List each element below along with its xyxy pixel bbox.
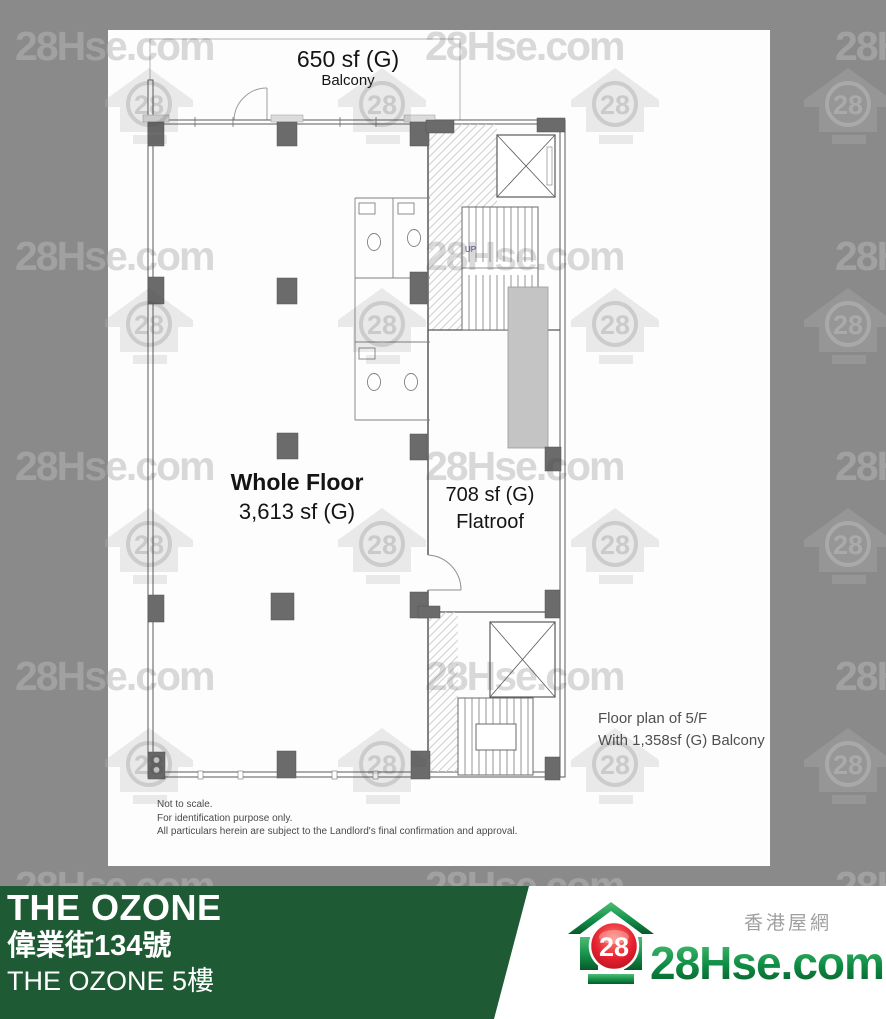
watermark-house: 28 <box>802 66 886 146</box>
disclaimer-line1: Not to scale. <box>157 798 577 812</box>
disclaimer-line2: For identification purpose only. <box>157 812 577 826</box>
bottom-bar: THE OZONE 偉業街134號 THE OZONE 5樓 <box>0 886 886 1019</box>
main-area-label: Whole Floor 3,613 sf (G) <box>197 468 397 527</box>
stairs-up-label: UP <box>465 245 476 254</box>
watermark-house: 28 <box>802 286 886 366</box>
watermark-house: 28 <box>802 726 886 806</box>
svg-text:28: 28 <box>833 90 863 120</box>
elevator-top <box>497 135 555 197</box>
flatroof-size: 708 sf (G) <box>420 482 560 509</box>
watermark-house: 28 <box>802 506 886 586</box>
watermark-house-icon: 28 <box>802 66 886 146</box>
page: 28Hse.com28Hse.com28Hse.com28Hse.com28Hs… <box>0 0 886 1019</box>
watermark-text: 28Hse.com <box>835 26 886 67</box>
watermark-text: 28Hse.com <box>835 236 886 277</box>
house-logo-icon: 28 <box>566 900 656 992</box>
watermark-house-icon: 28 <box>802 506 886 586</box>
watermark-house-icon: 28 <box>802 286 886 366</box>
watermark-house-icon: 28 <box>802 726 886 806</box>
toilets <box>355 198 430 420</box>
disclaimer-line3: All particulars herein are subject to th… <box>157 825 577 839</box>
main-area-title: Whole Floor <box>197 468 397 497</box>
flatroof-name: Flatroof <box>420 509 560 536</box>
watermark-text: 28Hse.com <box>835 656 886 697</box>
floor-note-line2: With 1,358sf (G) Balcony <box>598 730 770 752</box>
floorplan-card: UP <box>108 30 770 866</box>
skylight <box>508 287 548 448</box>
balcony-name-text: Balcony <box>238 72 458 89</box>
svg-text:28: 28 <box>833 750 863 780</box>
floor-note: Floor plan of 5/F With 1,358sf (G) Balco… <box>598 708 770 752</box>
balcony-area-label: 650 sf (G) Balcony <box>238 46 458 89</box>
logo-badge: 28 <box>599 932 629 962</box>
main-area-size: 3,613 sf (G) <box>197 497 397 527</box>
stairs-bottom <box>458 698 533 775</box>
elevator-bottom <box>490 622 555 697</box>
svg-text:28: 28 <box>833 530 863 560</box>
flatroof-label: 708 sf (G) Flatroof <box>420 482 560 536</box>
logo-tagline: 香港屋網 <box>744 908 832 935</box>
watermark-text: 28Hse.com <box>835 446 886 487</box>
svg-text:28: 28 <box>833 310 863 340</box>
bottom-core-hatch <box>429 612 458 772</box>
logo-brand-text: 28Hse.com <box>650 940 884 986</box>
disclaimer: Not to scale. For identification purpose… <box>157 798 577 839</box>
balcony-size-text: 650 sf (G) <box>238 46 458 72</box>
flatroof-door <box>428 555 461 590</box>
floor-note-line1: Floor plan of 5/F <box>598 708 770 730</box>
